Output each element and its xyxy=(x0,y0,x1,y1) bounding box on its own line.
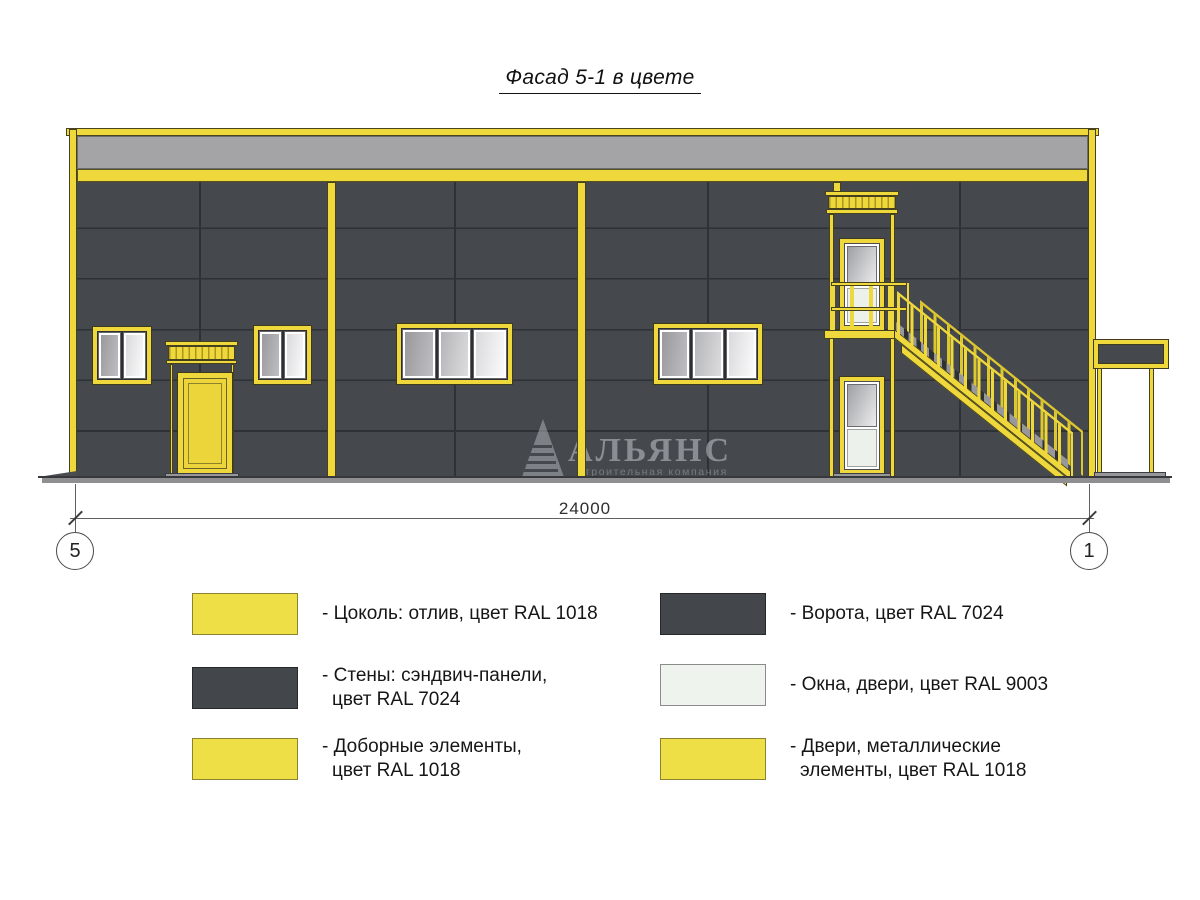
legend-label: элементы, цвет RAL 1018 xyxy=(790,759,1026,783)
side-canopy xyxy=(1094,340,1168,368)
legend-label: - Доборные элементы, xyxy=(322,735,522,759)
legend-swatch-dark xyxy=(660,593,766,635)
balcony-slab xyxy=(824,330,904,339)
axis-bubble-5: 5 xyxy=(56,532,94,570)
parapet-yellow-band xyxy=(77,169,1088,182)
extension-line-right xyxy=(1089,484,1090,532)
legend-label: - Окна, двери, цвет RAL 9003 xyxy=(790,673,1048,697)
tower-canopy-bottom xyxy=(826,209,898,214)
facade-column xyxy=(577,182,586,478)
legend-swatch-yellow xyxy=(192,738,298,780)
legend-row-gates: - Ворота, цвет RAL 7024 xyxy=(660,593,1004,635)
legend-swatch-yellow xyxy=(192,593,298,635)
tower-post-left xyxy=(829,214,834,477)
roof-cap xyxy=(66,128,1099,136)
legend-label: - Ворота, цвет RAL 7024 xyxy=(790,602,1004,626)
tower-canopy-ribs xyxy=(828,196,896,209)
legend-label: - Цоколь: отлив, цвет RAL 1018 xyxy=(322,602,598,626)
legend-swatch-white xyxy=(660,664,766,706)
corner-column-right xyxy=(1088,129,1096,477)
legend-row-doors-metal: - Двери, металлические элементы, цвет RA… xyxy=(660,735,1026,783)
legend-label: - Двери, металлические xyxy=(790,735,1026,759)
legend-row-plinth: - Цоколь: отлив, цвет RAL 1018 xyxy=(192,593,598,635)
drawing-title-wrap: Фасад 5-1 в цвете xyxy=(0,66,1200,94)
legend-row-windows: - Окна, двери, цвет RAL 9003 xyxy=(660,664,1048,706)
window-3pane xyxy=(653,323,763,385)
window-2pane xyxy=(253,325,312,385)
legend-label: цвет RAL 7024 xyxy=(322,688,547,712)
ground-band xyxy=(42,478,1170,483)
door-canopy-ribs xyxy=(168,346,235,360)
legend-label: - Стены: сэндвич-панели, xyxy=(322,664,547,688)
drawing-title: Фасад 5-1 в цвете xyxy=(499,66,700,94)
extension-line-left xyxy=(75,484,76,532)
door-canopy-bottom xyxy=(166,360,237,364)
panel-seam xyxy=(959,182,961,478)
balcony-top-rail xyxy=(831,282,907,286)
corner-column-left xyxy=(69,129,77,477)
canopy-post xyxy=(170,364,173,474)
entrance-door-yellow xyxy=(177,372,233,475)
balcony-mid-rail xyxy=(831,307,907,311)
side-canopy-post xyxy=(1097,368,1102,477)
side-canopy-post xyxy=(1149,368,1154,477)
tower-lower-door xyxy=(839,376,885,475)
watermark-company-name: АЛЬЯНС xyxy=(568,432,732,470)
facade-drawing-canvas: Фасад 5-1 в цвете АЛЬЯНС строительная ко… xyxy=(0,0,1200,900)
parapet-fascia xyxy=(77,136,1088,169)
axis-number: 5 xyxy=(69,540,80,563)
legend-row-walls: - Стены: сэндвич-панели, цвет RAL 7024 xyxy=(192,664,547,712)
legend-swatch-yellow xyxy=(660,738,766,780)
window-3pane xyxy=(396,323,513,385)
legend-label: цвет RAL 1018 xyxy=(322,759,522,783)
tower-post-right xyxy=(890,214,895,477)
facade-column xyxy=(327,182,336,478)
axis-bubble-1: 1 xyxy=(1070,532,1108,570)
window-2pane xyxy=(92,326,152,385)
legend-swatch-dark xyxy=(192,667,298,709)
dimension-value: 24000 xyxy=(540,499,630,519)
axis-number: 1 xyxy=(1083,540,1094,563)
legend-row-trim: - Доборные элементы, цвет RAL 1018 xyxy=(192,735,522,783)
